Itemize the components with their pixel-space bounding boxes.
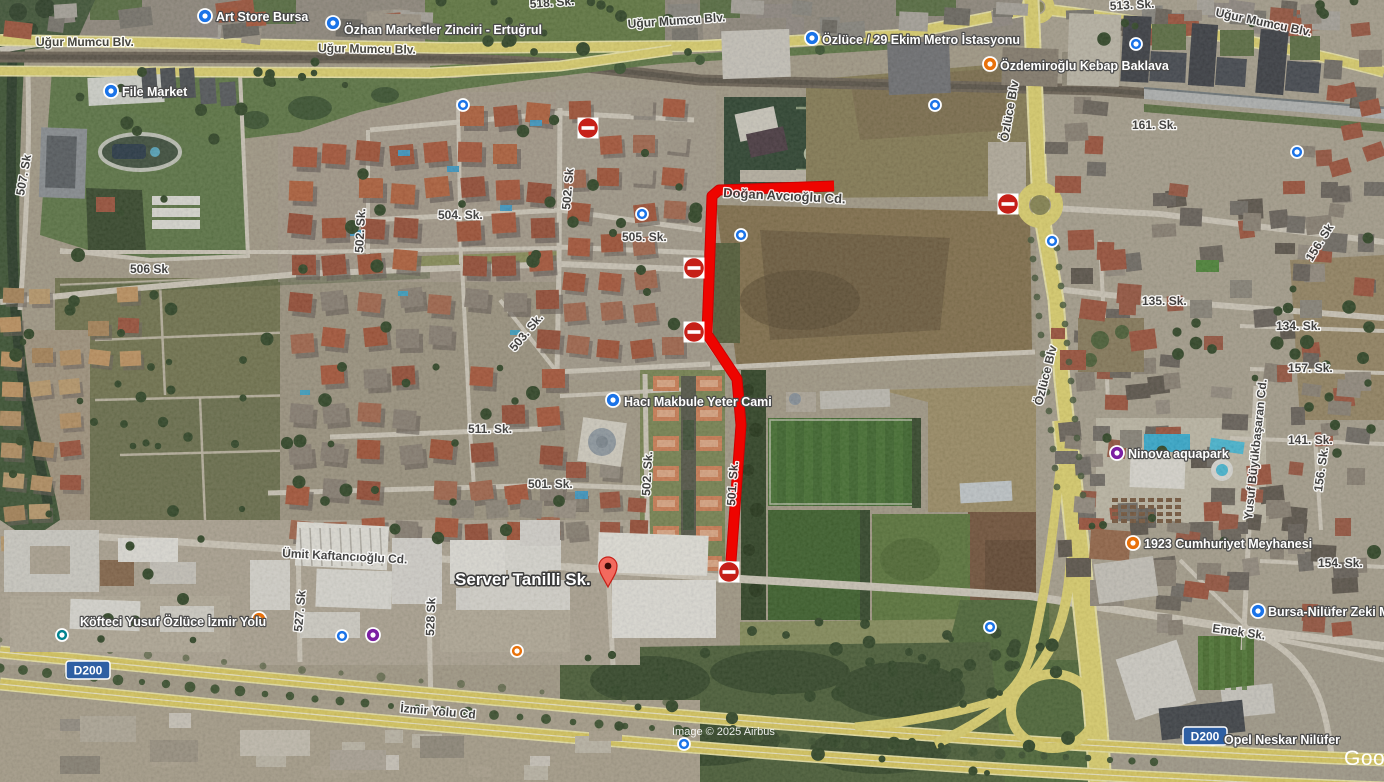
svg-text:157. Sk.: 157. Sk. (1288, 361, 1333, 375)
svg-text:Art Store Bursa: Art Store Bursa (216, 10, 309, 24)
svg-text:511. Sk.: 511. Sk. (468, 422, 512, 436)
svg-text:D200: D200 (1191, 730, 1220, 744)
svg-text:D200: D200 (74, 664, 103, 678)
svg-text:Hacı Makbule Yeter Cami: Hacı Makbule Yeter Cami (624, 395, 772, 409)
svg-text:506 Sk: 506 Sk (130, 262, 168, 276)
svg-text:Bursa-Nilüfer Zeki Mü: Bursa-Nilüfer Zeki Mü (1268, 605, 1384, 619)
svg-text:Özlüce / 29 Ekim Metro İstasyo: Özlüce / 29 Ekim Metro İstasyonu (822, 32, 1020, 47)
svg-text:1923 Cumhuriyet Meyhanesi: 1923 Cumhuriyet Meyhanesi (1144, 537, 1312, 551)
svg-text:Opel Neskar Nilüfer: Opel Neskar Nilüfer (1224, 733, 1340, 747)
svg-text:505. Sk.: 505. Sk. (622, 230, 667, 244)
svg-text:504. Sk.: 504. Sk. (438, 208, 483, 222)
svg-text:Özdemiroğlu Kebap Baklava: Özdemiroğlu Kebap Baklava (1000, 58, 1170, 73)
svg-text:Köfteci Yusuf Özlüce İzmir Yol: Köfteci Yusuf Özlüce İzmir Yolu (80, 614, 266, 629)
svg-text:502. Sk.: 502. Sk. (352, 208, 368, 253)
svg-text:528 Sk: 528 Sk (423, 597, 438, 636)
svg-text:Ninova aquapark: Ninova aquapark (1128, 447, 1229, 461)
svg-text:161. Sk.: 161. Sk. (1132, 118, 1177, 132)
svg-text:File Market: File Market (122, 85, 188, 99)
svg-text:Goog: Goog (1344, 747, 1384, 770)
svg-text:Uğur Mumcu Blv.: Uğur Mumcu Blv. (36, 35, 134, 49)
svg-text:Özhan Marketler Zinciri - Ertu: Özhan Marketler Zinciri - Ertuğrul (344, 22, 542, 37)
svg-text:Image © 2025 Airbus: Image © 2025 Airbus (672, 726, 775, 738)
svg-text:Server Tanilli Sk.: Server Tanilli Sk. (455, 570, 591, 589)
svg-text:154. Sk.: 154. Sk. (1318, 556, 1363, 570)
svg-text:Uğur Mumcu Blv.: Uğur Mumcu Blv. (318, 41, 416, 57)
svg-text:501. Sk.: 501. Sk. (528, 477, 573, 491)
svg-text:141. Sk.: 141. Sk. (1288, 433, 1333, 447)
svg-text:502. Sk.: 502. Sk. (639, 451, 655, 496)
svg-text:135. Sk.: 135. Sk. (1142, 294, 1187, 308)
svg-text:134. Sk.: 134. Sk. (1276, 319, 1321, 333)
